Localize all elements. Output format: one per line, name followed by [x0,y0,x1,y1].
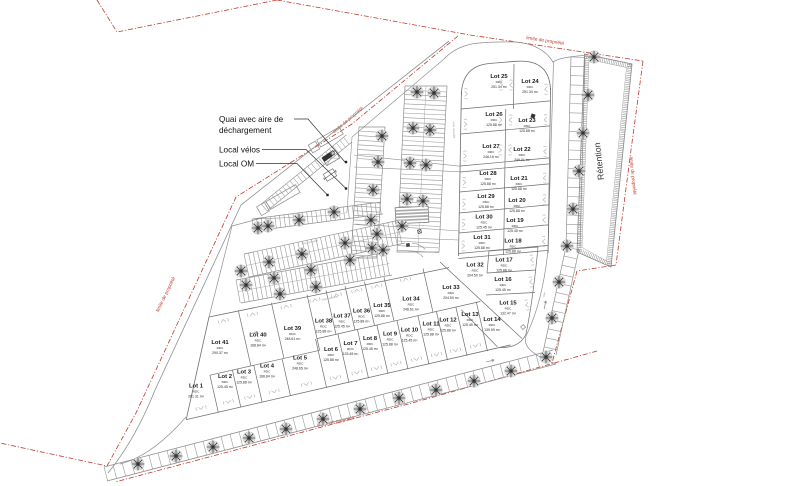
svg-text:125.88 m²: 125.88 m² [519,129,536,133]
svg-text:246.16 m²: 246.16 m² [483,155,500,159]
svg-text:Lot 37: Lot 37 [333,314,351,320]
svg-text:Lot 14: Lot 14 [483,317,501,323]
svg-text:125.45 m²: 125.45 m² [362,347,379,351]
svg-text:125.45 m²: 125.45 m² [476,226,493,230]
svg-text:125.88 m²: 125.88 m² [382,343,399,347]
svg-text:125.88 m²: 125.88 m² [354,320,371,324]
svg-text:125.88 m²: 125.88 m² [374,314,391,318]
svg-text:132.47 m²: 132.47 m² [500,312,517,316]
svg-text:RDC: RDC [379,309,386,313]
svg-text:Local vélos: Local vélos [219,146,260,155]
svg-text:RDC: RDC [297,362,304,366]
svg-text:RDC: RDC [217,346,224,350]
svg-text:Lot 7: Lot 7 [343,341,358,347]
svg-text:RDC: RDC [524,124,531,128]
svg-text:Lot 20: Lot 20 [508,198,526,204]
svg-text:Lot 21: Lot 21 [510,176,528,182]
svg-text:RDC: RDC [500,283,507,287]
svg-text:125.45 m²: 125.45 m² [495,288,512,292]
svg-text:Lot 2: Lot 2 [218,374,233,380]
svg-text:RDC: RDC [527,85,534,89]
svg-text:Lot 33: Lot 33 [442,285,460,291]
svg-text:168.84 m²: 168.84 m² [259,375,276,379]
svg-text:RDC: RDC [264,370,271,374]
svg-text:125.45 m²: 125.45 m² [462,323,479,327]
svg-text:Lot 15: Lot 15 [499,301,517,307]
svg-text:RDC: RDC [222,380,229,384]
svg-text:Lot 35: Lot 35 [373,303,391,309]
svg-text:RDC: RDC [320,325,327,329]
svg-text:RDC: RDC [193,390,200,394]
svg-text:RDC: RDC [483,200,490,204]
svg-text:Lot 23: Lot 23 [518,118,536,124]
svg-text:125.88 m²: 125.88 m² [511,187,528,191]
svg-text:déchargement: déchargement [219,126,272,135]
svg-text:RDC: RDC [512,224,519,228]
svg-text:RDC: RDC [406,334,413,338]
svg-text:Lot 27: Lot 27 [482,144,500,150]
svg-text:Lot 41: Lot 41 [211,340,229,346]
svg-text:RDC: RDC [339,320,346,324]
svg-text:249.01 m²: 249.01 m² [514,158,531,162]
svg-text:125.88 m²: 125.88 m² [423,333,440,337]
svg-text:Lot 10: Lot 10 [401,328,419,334]
svg-text:RDC: RDC [519,153,526,157]
svg-text:RDC: RDC [496,80,503,84]
svg-text:Local OM: Local OM [219,160,254,169]
svg-text:RDC: RDC [445,324,452,328]
svg-text:Lot 13: Lot 13 [461,312,479,318]
svg-text:Lot 24: Lot 24 [521,79,539,85]
svg-text:RDC: RDC [358,315,365,319]
svg-text:RDC: RDC [241,376,248,380]
svg-text:125.88 m²: 125.88 m² [236,381,253,385]
svg-text:Lot 4: Lot 4 [260,364,275,370]
svg-text:261.31 m²: 261.31 m² [188,395,205,399]
svg-text:139.59 m²: 139.59 m² [484,328,501,332]
svg-text:125.88 m²: 125.88 m² [474,246,491,250]
svg-text:Lot 18: Lot 18 [504,239,522,245]
svg-text:RDC: RDC [488,150,495,154]
svg-text:125.88 m²: 125.88 m² [440,329,457,333]
svg-text:RDC: RDC [481,221,488,225]
svg-text:Quai avec aire de: Quai avec aire de [219,115,284,124]
svg-text:RDC: RDC [448,291,455,295]
svg-text:Lot 22: Lot 22 [513,147,531,153]
svg-text:RDC: RDC [472,269,479,273]
svg-text:Lot 9: Lot 9 [383,332,398,338]
svg-text:Lot 3: Lot 3 [237,370,252,376]
svg-text:125.45 m²: 125.45 m² [334,325,351,329]
svg-text:RDC: RDC [516,182,523,186]
svg-text:Voie nouvelle: Voie nouvelle [452,122,457,139]
svg-text:248.65 m²: 248.65 m² [292,367,309,371]
svg-text:125.88 m²: 125.88 m² [505,250,522,254]
svg-text:248.61 m²: 248.61 m² [285,337,302,341]
svg-text:RDC: RDC [505,307,512,311]
svg-text:204.50 m²: 204.50 m² [443,296,460,300]
svg-text:Lot 38: Lot 38 [315,319,333,325]
svg-text:Lot 6: Lot 6 [324,347,339,353]
svg-text:125.45 m²: 125.45 m² [343,352,360,356]
svg-text:RDC: RDC [367,342,374,346]
svg-text:RDC: RDC [479,241,486,245]
svg-text:125.45 m²: 125.45 m² [507,229,524,233]
svg-text:Lot 31: Lot 31 [473,235,491,241]
svg-text:125.88 m²: 125.88 m² [496,269,513,273]
svg-text:125.45 m²: 125.45 m² [217,385,234,389]
svg-text:RDC: RDC [485,177,492,181]
svg-text:RDC: RDC [255,339,262,343]
svg-text:Lot 25: Lot 25 [490,74,508,80]
svg-text:Lot 17: Lot 17 [495,258,513,264]
svg-text:125.45 m²: 125.45 m² [402,339,419,343]
svg-text:204.50 m²: 204.50 m² [467,274,484,278]
svg-text:RDC: RDC [328,353,335,357]
svg-text:Lot 29: Lot 29 [477,194,495,200]
svg-text:RDC: RDC [289,332,296,336]
svg-text:RDC: RDC [347,347,354,351]
svg-text:Lot 39: Lot 39 [284,326,302,332]
svg-text:Lot 36: Lot 36 [353,309,371,315]
svg-text:RDC: RDC [491,118,498,122]
svg-text:251.34 m²: 251.34 m² [491,85,508,89]
svg-text:Lot 28: Lot 28 [479,171,497,177]
svg-text:125.88 m²: 125.88 m² [478,205,495,209]
svg-text:RDC: RDC [408,303,415,307]
svg-text:RDC: RDC [514,204,521,208]
svg-text:Lot 32: Lot 32 [466,263,484,269]
svg-text:Lot 1: Lot 1 [189,384,204,390]
svg-text:RDC: RDC [387,338,394,342]
svg-text:125.88 m²: 125.88 m² [323,358,340,362]
svg-text:Lot 19: Lot 19 [506,218,524,224]
svg-text:Lot 5: Lot 5 [293,356,308,362]
svg-text:Lot 12: Lot 12 [439,318,457,324]
svg-text:Lot 16: Lot 16 [494,277,512,283]
svg-text:251.34 m²: 251.34 m² [522,90,539,94]
svg-text:Lot 34: Lot 34 [402,297,420,303]
svg-text:Lot 11: Lot 11 [422,322,440,328]
svg-text:RDC: RDC [510,245,517,249]
svg-text:248.61 m²: 248.61 m² [403,308,420,312]
svg-text:125.88 m²: 125.88 m² [316,330,333,334]
svg-text:Lot 30: Lot 30 [475,215,493,221]
svg-text:Lot 8: Lot 8 [363,336,378,342]
svg-text:RDC: RDC [467,318,474,322]
svg-text:125.88 m²: 125.88 m² [509,209,526,213]
svg-text:290.37 m²: 290.37 m² [212,351,229,355]
svg-text:RDC: RDC [489,323,496,327]
svg-text:RDC: RDC [501,264,508,268]
svg-text:168.84 m²: 168.84 m² [250,344,267,348]
svg-text:125.88 m²: 125.88 m² [480,182,497,186]
svg-text:RDC: RDC [428,328,435,332]
